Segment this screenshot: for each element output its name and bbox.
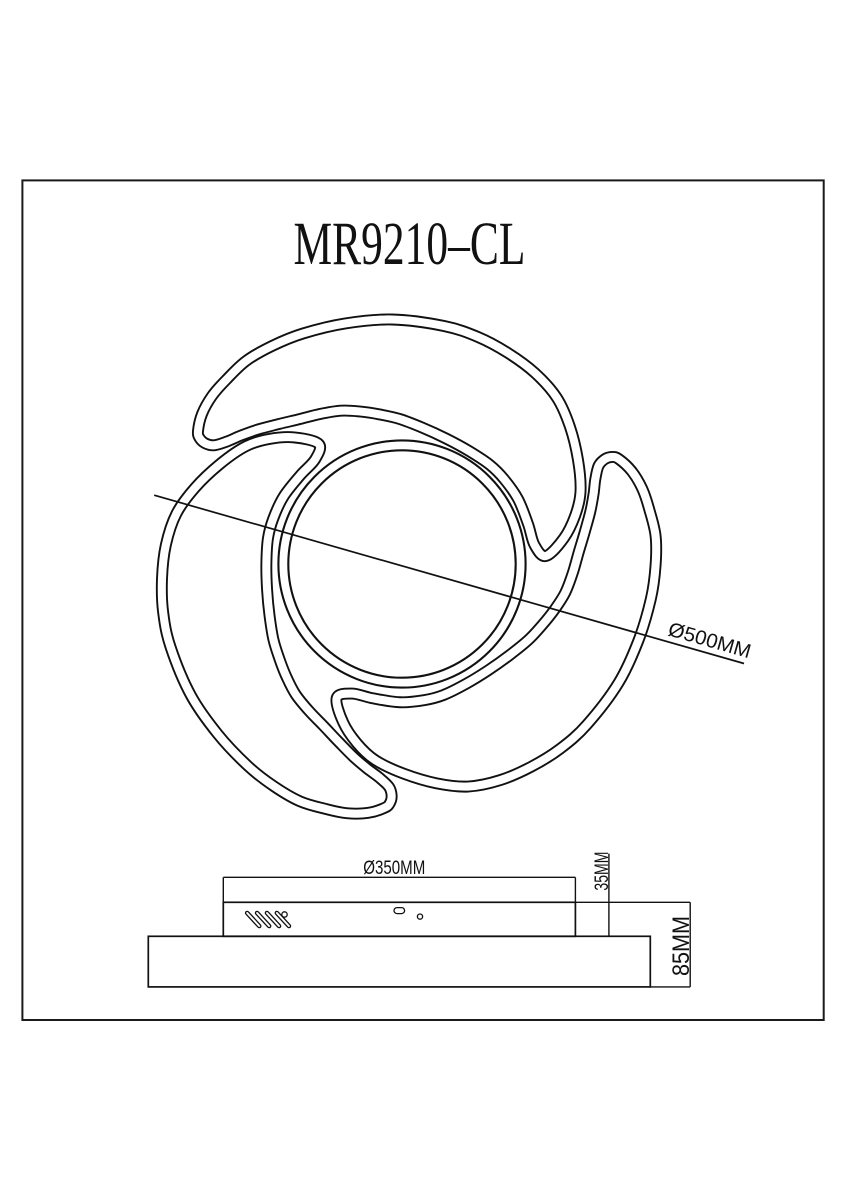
svg-text:85MM: 85MM	[668, 916, 695, 976]
svg-text:35MM: 35MM	[592, 852, 613, 891]
svg-text:Ø350MM: Ø350MM	[363, 858, 425, 879]
svg-text:MR9210–CL: MR9210–CL	[294, 210, 526, 278]
